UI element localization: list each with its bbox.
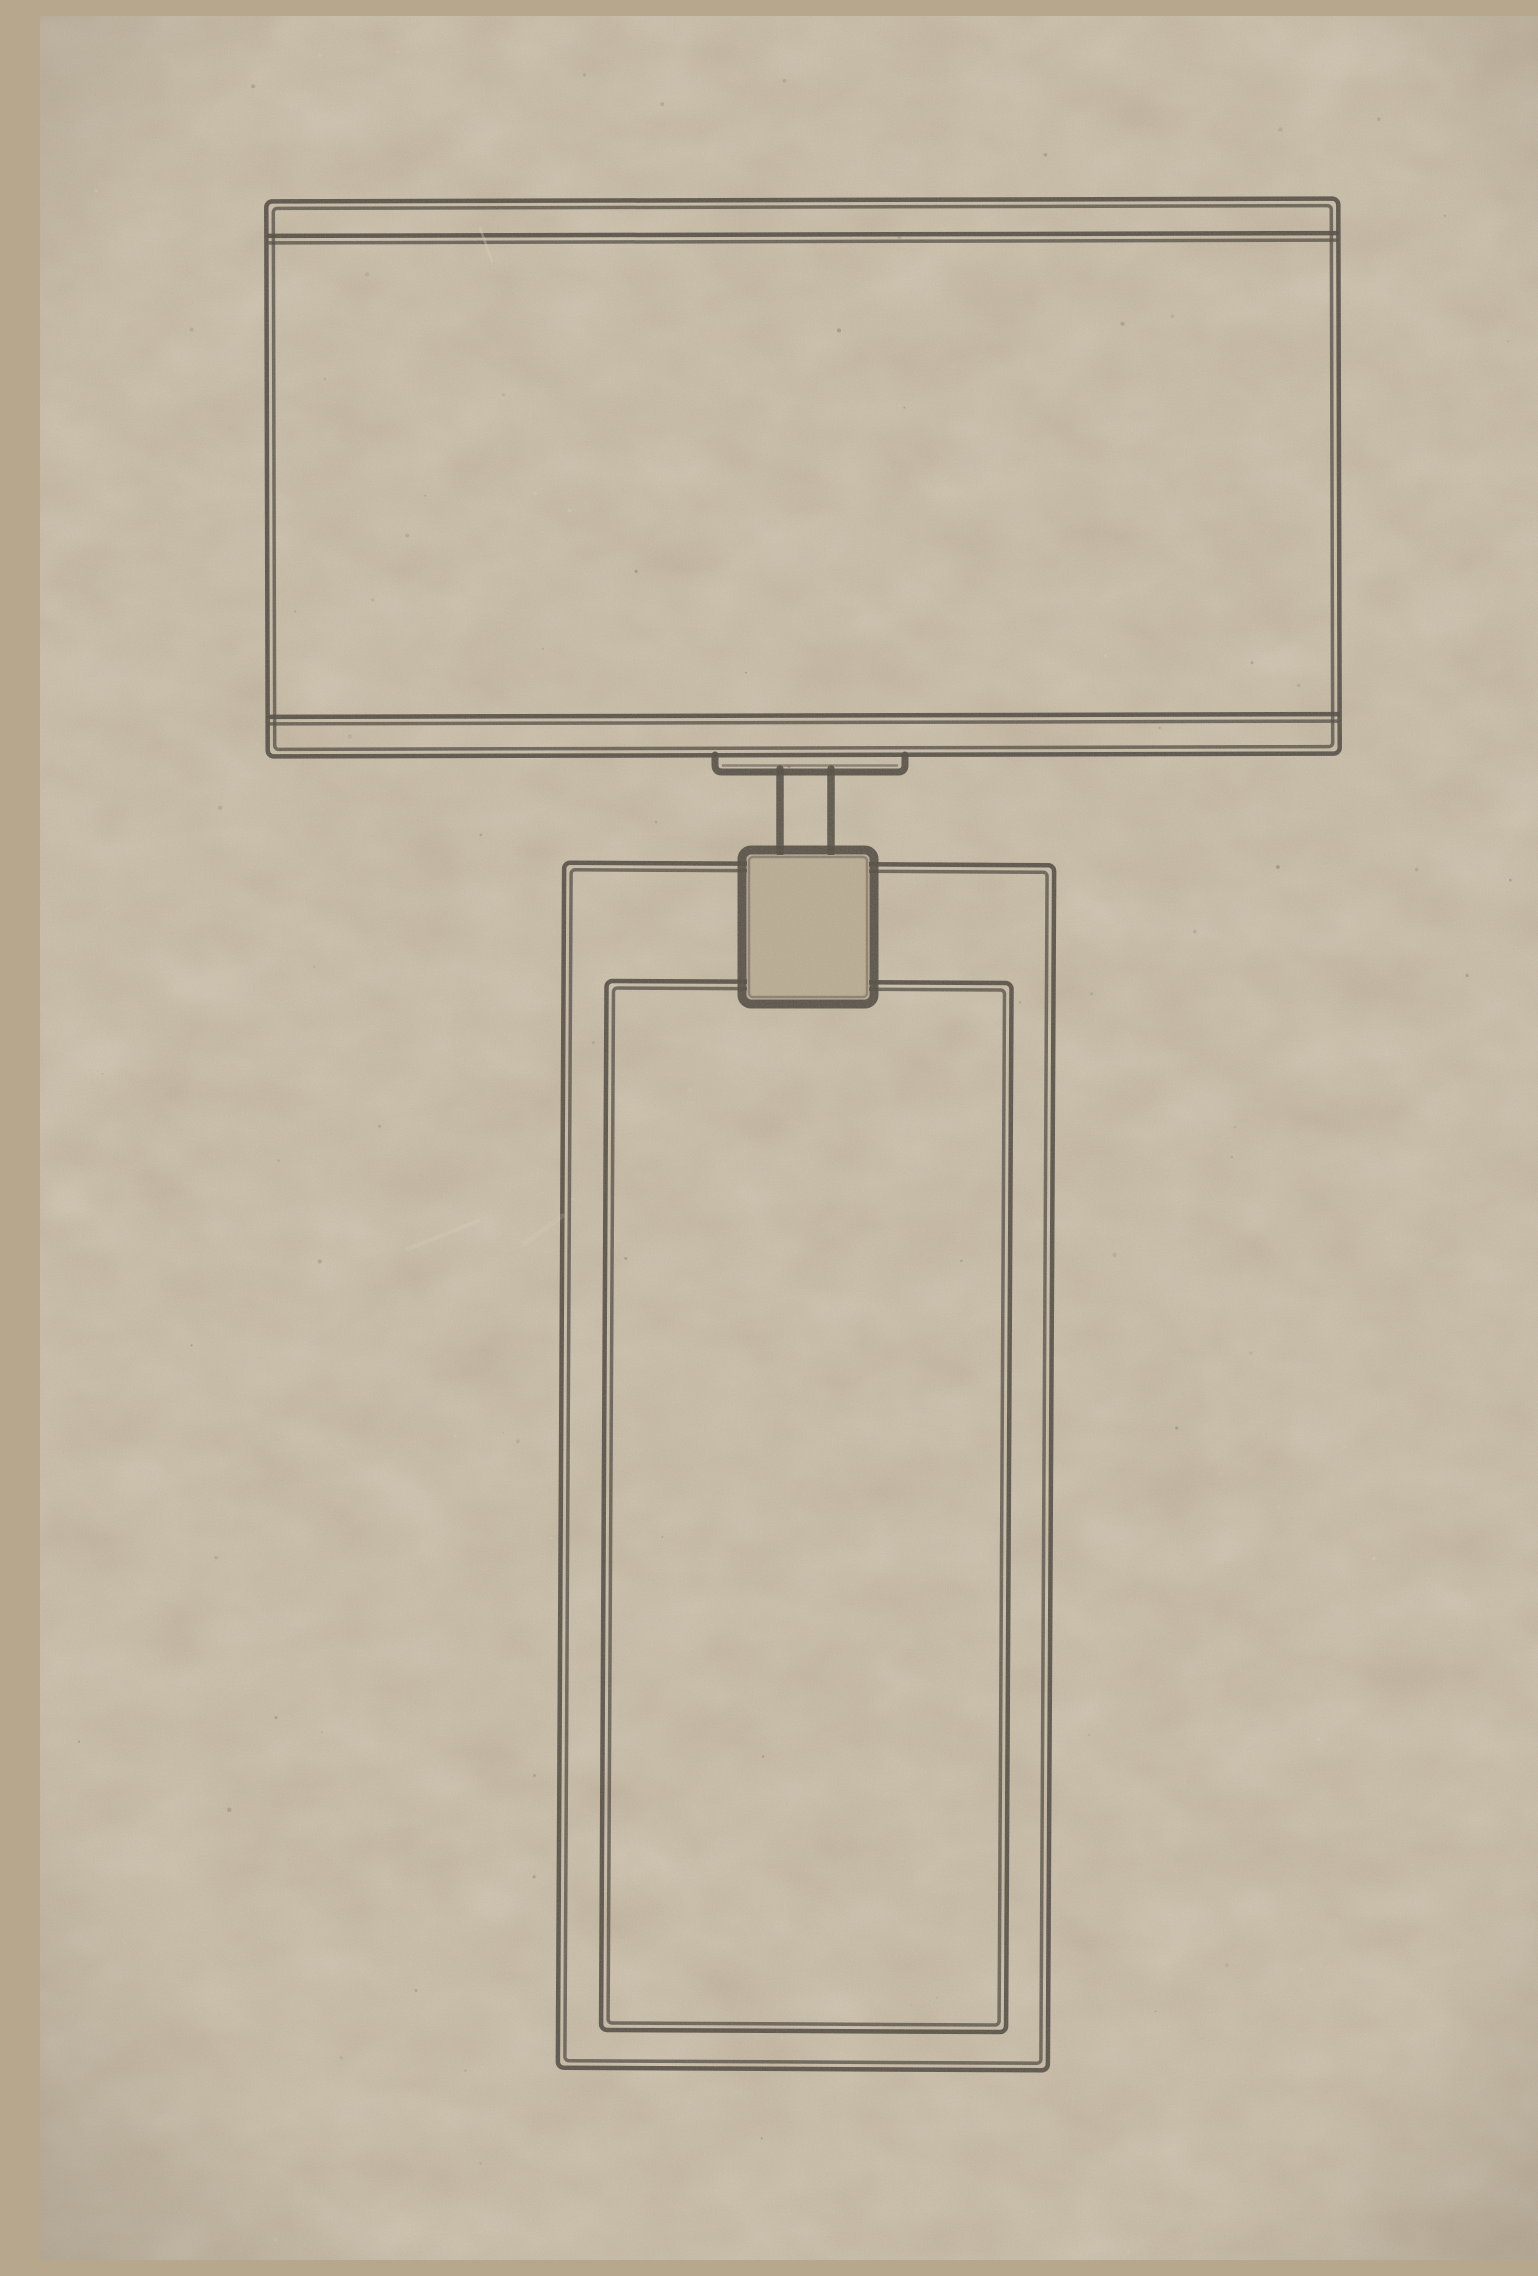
cardboard-photo: [40, 16, 1538, 2260]
lamp-line-drawing: [40, 16, 1538, 2260]
vignette: [40, 16, 1538, 2260]
